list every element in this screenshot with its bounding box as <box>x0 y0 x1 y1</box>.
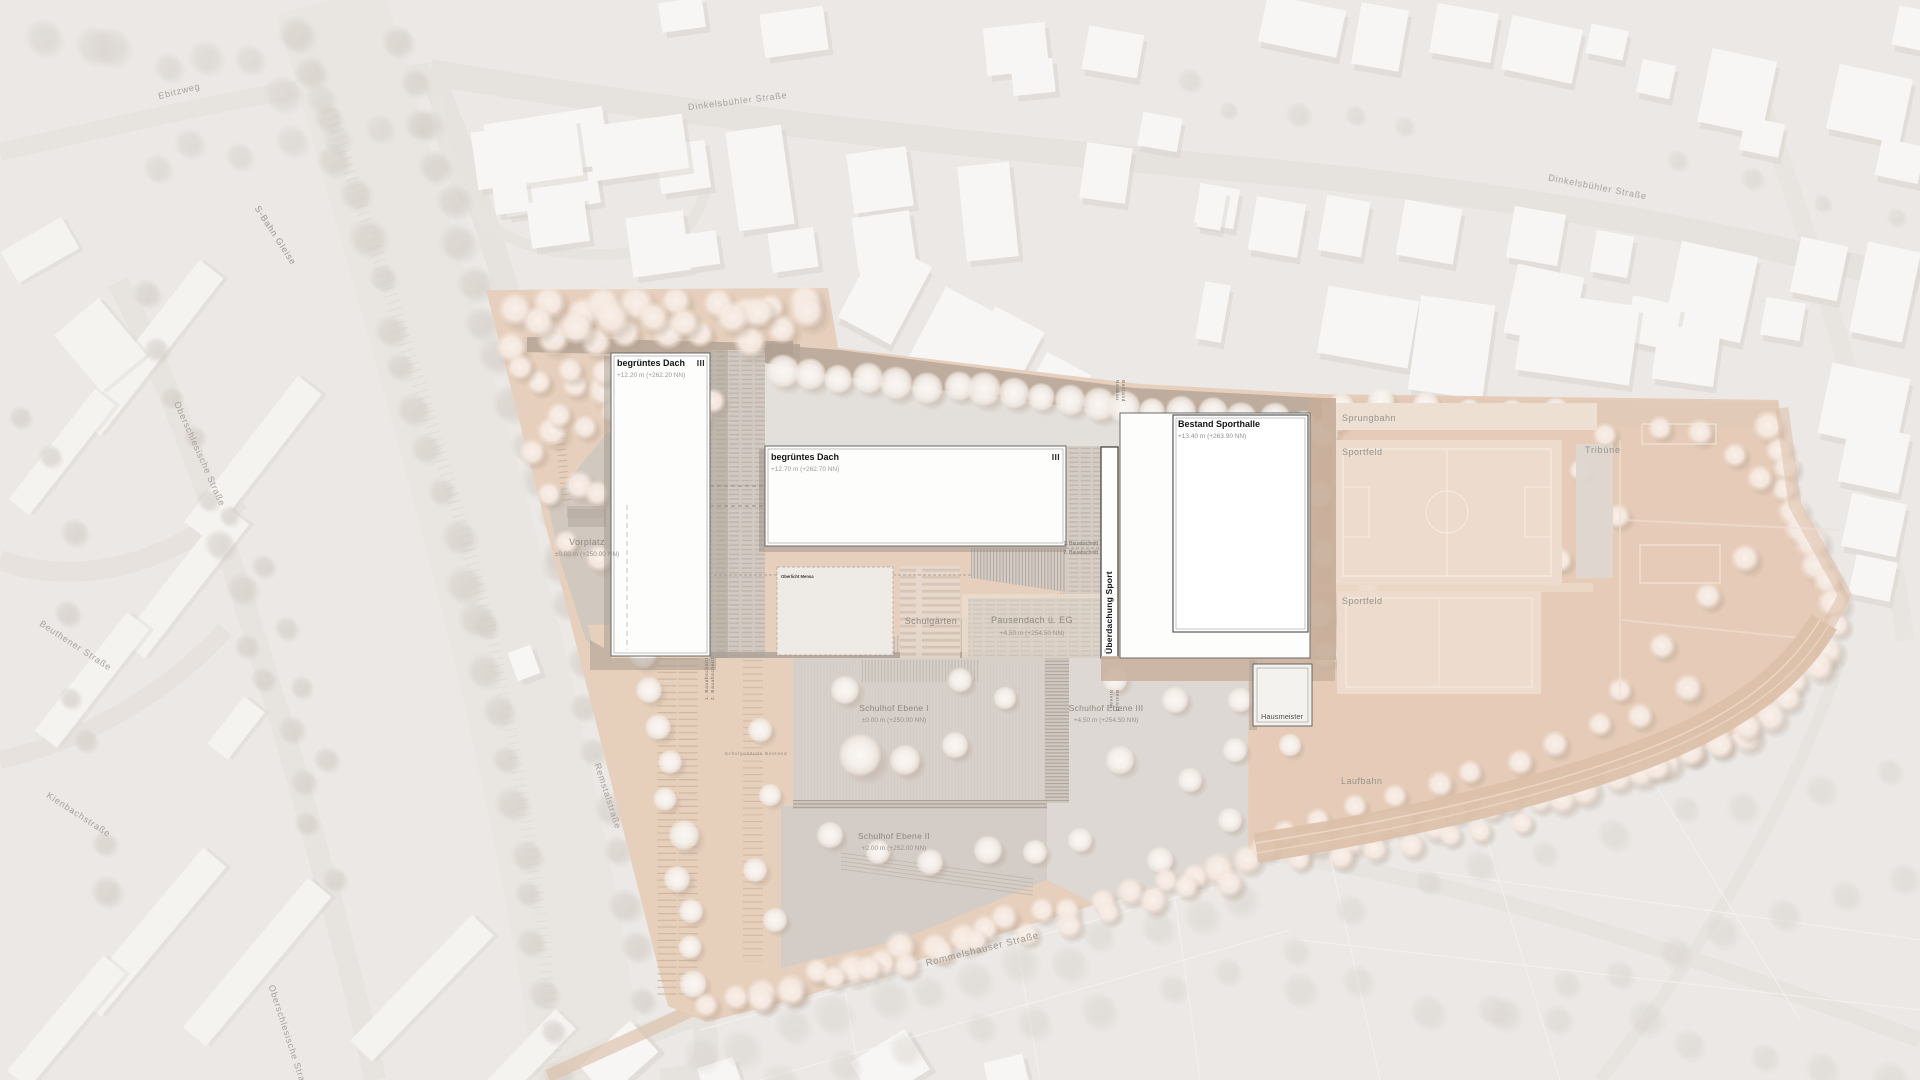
svg-text:Niveau: Niveau <box>1109 690 1114 709</box>
svg-text:+13.40 m (+263.90 NN): +13.40 m (+263.90 NN) <box>1178 433 1246 440</box>
svg-text:+4.50 m (+254.50 NN): +4.50 m (+254.50 NN) <box>1000 630 1065 637</box>
svg-text:+12.70 m (+262.70 NN): +12.70 m (+262.70 NN) <box>771 466 839 473</box>
svg-text:Neubau: Neubau <box>1115 380 1120 401</box>
svg-text:Sportfeld: Sportfeld <box>1342 596 1383 606</box>
svg-text:Sprungbahn: Sprungbahn <box>1342 413 1396 423</box>
svg-text:III: III <box>697 358 705 368</box>
svg-text:Schulhof Ebene III: Schulhof Ebene III <box>1069 703 1144 713</box>
svg-text:1. Bauabschnitt: 1. Bauabschnitt <box>1064 541 1099 547</box>
svg-text:±0.00 m (+250.00 NN): ±0.00 m (+250.00 NN) <box>555 551 619 558</box>
svg-text:Schulhof Ebene II: Schulhof Ebene II <box>858 831 930 841</box>
svg-text:Vorplatz: Vorplatz <box>569 537 605 547</box>
svg-text:Sportfeld: Sportfeld <box>1342 447 1383 457</box>
svg-text:Schulhof Ebene I: Schulhof Ebene I <box>859 703 929 713</box>
svg-text:Laufbahn: Laufbahn <box>1341 776 1383 786</box>
svg-text:2. Bauabschnitt: 2. Bauabschnitt <box>1064 550 1099 556</box>
svg-text:+4.50 m (+254.50 NN): +4.50 m (+254.50 NN) <box>1074 717 1139 724</box>
svg-text:III: III <box>1052 452 1060 462</box>
svg-text:Bestand: Bestand <box>1115 690 1120 712</box>
svg-text:Oberlicht Mensa: Oberlicht Mensa <box>781 574 814 579</box>
svg-text:begrüntes Dach: begrüntes Dach <box>771 452 839 462</box>
svg-text:Tribüne: Tribüne <box>1585 445 1621 455</box>
svg-text:2. Bauabschnitt: 2. Bauabschnitt <box>710 657 715 700</box>
svg-text:Bestand: Bestand <box>1121 380 1126 402</box>
svg-text:Schulgärten: Schulgärten <box>905 616 957 626</box>
svg-text:begrüntes Dach: begrüntes Dach <box>617 358 685 368</box>
svg-text:+12.20 m (+262.20 NN): +12.20 m (+262.20 NN) <box>617 372 685 379</box>
svg-text:±0.00 m (+250.00 NN): ±0.00 m (+250.00 NN) <box>862 717 926 724</box>
svg-text:Bestand Sporthalle: Bestand Sporthalle <box>1178 419 1260 429</box>
svg-text:+2.00 m (+252.00 NN): +2.00 m (+252.00 NN) <box>862 845 927 852</box>
svg-text:Schulgebäude Bestand: Schulgebäude Bestand <box>725 751 788 756</box>
svg-text:1. Bauabschnitt: 1. Bauabschnitt <box>704 657 709 700</box>
svg-text:Pausendach ü. EG: Pausendach ü. EG <box>991 615 1073 625</box>
svg-text:Hausmeister: Hausmeister <box>1261 712 1304 721</box>
svg-text:Überdachung Sport: Überdachung Sport <box>1104 571 1114 654</box>
